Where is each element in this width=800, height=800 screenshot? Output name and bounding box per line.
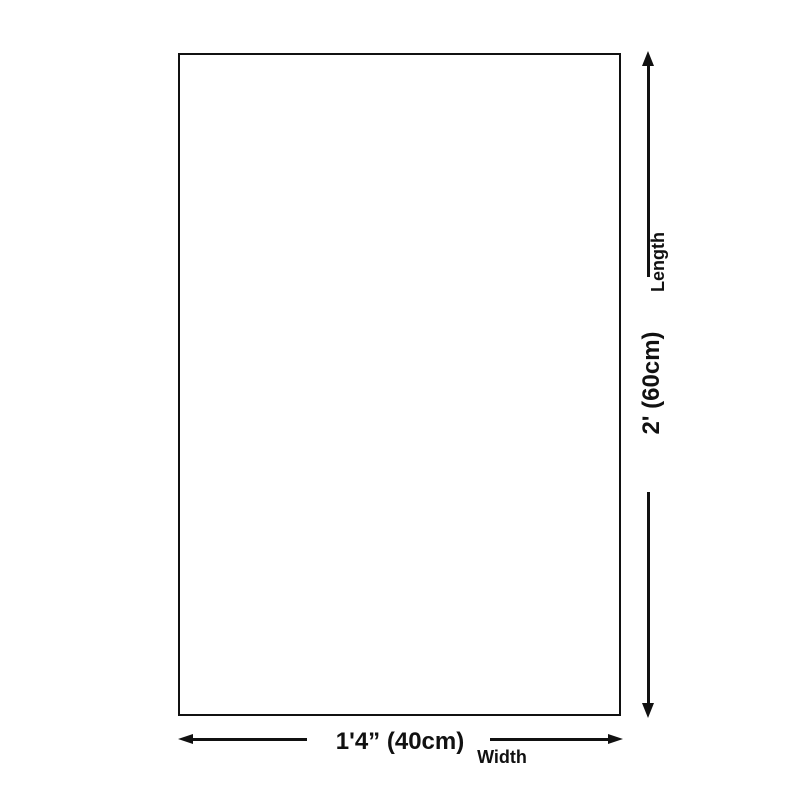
width-axis-label: Width bbox=[477, 748, 527, 766]
product-outline bbox=[178, 53, 621, 716]
dimension-diagram: Length 2' (60cm) 1'4” (40cm) Width bbox=[0, 0, 800, 800]
width-arrow-right-shaft bbox=[490, 738, 610, 741]
width-value-label: 1'4” (40cm) bbox=[336, 730, 464, 754]
length-value-label: 2' (60cm) bbox=[640, 331, 664, 434]
arrow-down-icon bbox=[642, 703, 654, 718]
arrow-right-icon bbox=[608, 734, 623, 744]
width-arrow-left-shaft bbox=[190, 738, 307, 741]
length-arrow-lower-shaft bbox=[647, 492, 650, 706]
length-axis-label: Length bbox=[649, 232, 667, 292]
